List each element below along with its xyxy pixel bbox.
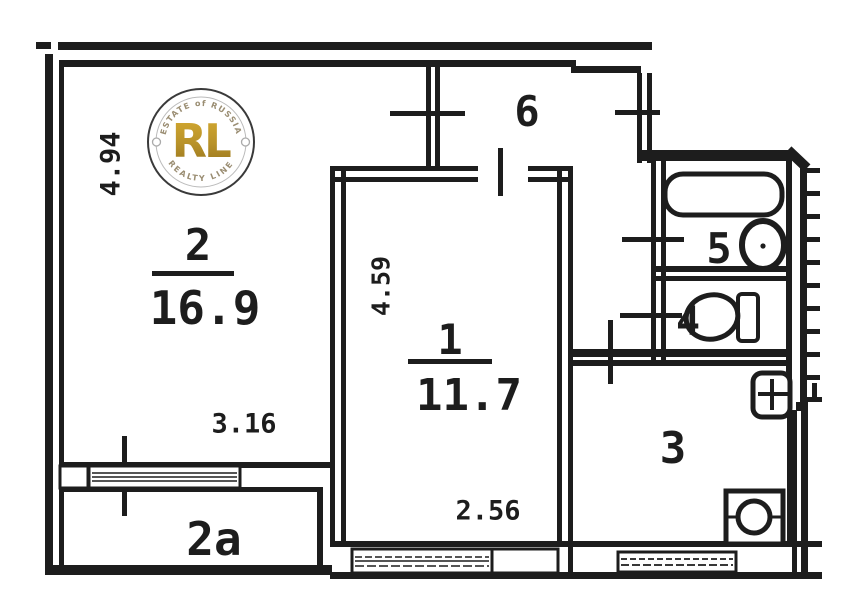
room-5-number: 5 [706,228,731,270]
watermark: ESTATE of RUSSIA REALTY LINE RL [146,87,256,197]
fraction-line [152,271,234,276]
fixtures-layer [0,0,853,600]
floor-plan: 2 16.9 1 11.7 6 5 4 3 2a 4.94 4.59 3.16 … [0,0,853,600]
wall-segment [796,402,808,411]
kitchen-sink [726,491,783,544]
dimension-bedroom-height: 4.59 [369,256,394,316]
room-1-area: 11.7 [416,374,522,418]
window [89,466,240,488]
dimension-living-height: 4.94 [98,131,125,196]
room-3-number: 3 [660,427,687,471]
wall-hatch-ticks [806,168,822,402]
room-2-area: 16.9 [150,285,261,331]
dimension-bedroom-width: 2.56 [455,498,520,525]
window [618,552,736,572]
window [352,549,492,573]
room-2a-number: 2a [186,516,241,562]
bathtub [665,174,782,215]
stove [753,373,790,417]
watermark-initials: RL [172,114,231,168]
room-2-number: 2 [185,224,212,268]
room-4-number: 4 [676,302,700,342]
dimension-living-width: 3.16 [211,411,276,438]
wall-segment [788,150,807,168]
room-6-number: 6 [514,91,539,133]
wall-pier [60,466,88,488]
fraction-line [408,359,492,364]
wall-pier [492,549,558,573]
room-1-number: 1 [437,319,462,361]
washbasin [742,221,784,269]
